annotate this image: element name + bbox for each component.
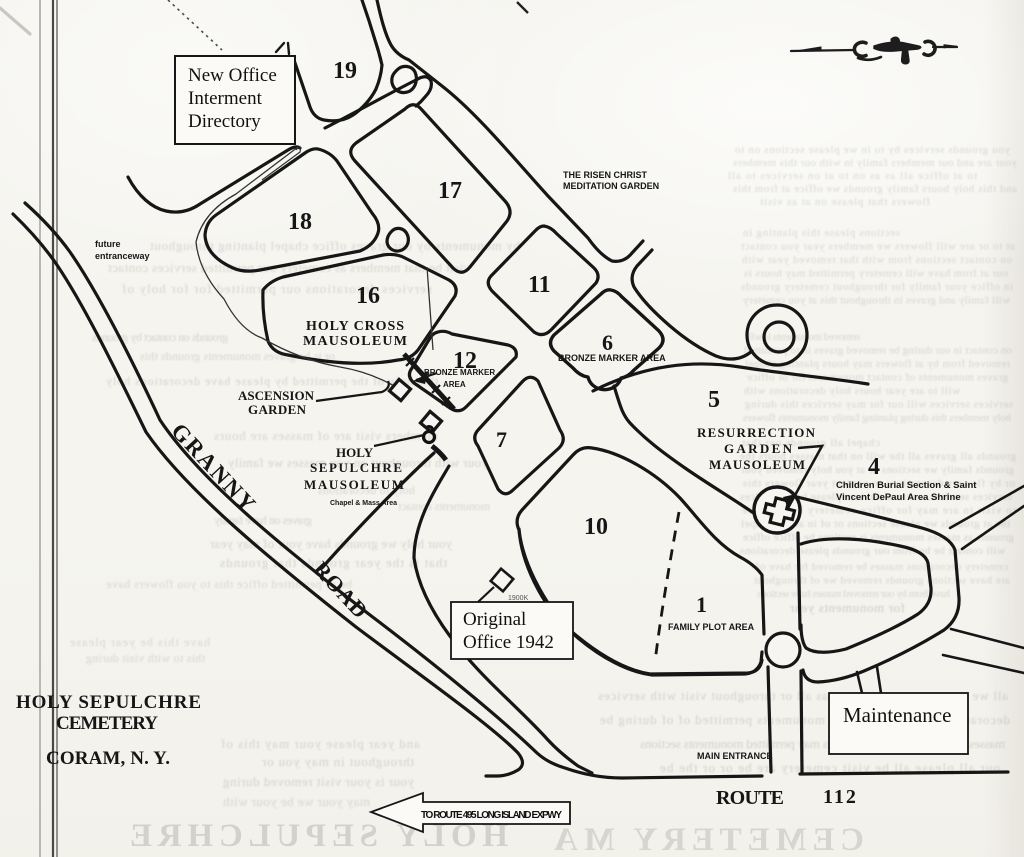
svg-text:cemetery decorations masses be: cemetery decorations masses be removed f…: [756, 561, 1008, 573]
svg-text:ASCENSION: ASCENSION: [238, 388, 315, 403]
svg-text:Directory: Directory: [188, 111, 261, 132]
svg-text:18: 18: [288, 209, 312, 235]
svg-text:CEMETERY: CEMETERY: [56, 713, 158, 734]
svg-text:at to or are will flowers we m: at to or are will flowers we members yea…: [741, 241, 1015, 253]
svg-text:may your we be your with: may your we be your with: [223, 794, 371, 809]
svg-text:HOLY CROSS: HOLY CROSS: [306, 319, 404, 334]
svg-text:and year please your may this: and year please your may this of: [220, 736, 420, 751]
svg-text:1: 1: [696, 592, 707, 617]
svg-text:or is be graves monuments grou: or is be graves monuments grounds this: [140, 349, 335, 363]
svg-text:HOLY: HOLY: [336, 445, 374, 460]
svg-text:THE RISEN CHRIST: THE RISEN CHRIST: [563, 170, 648, 180]
svg-text:MAUSOLEUM: MAUSOLEUM: [709, 457, 805, 472]
svg-text:on contact sections from with: on contact sections from with that remov…: [742, 254, 1013, 266]
svg-text:you grounds services by to in: you grounds services by to in we please …: [735, 144, 1011, 156]
svg-text:5: 5: [708, 387, 720, 413]
svg-text:7: 7: [496, 427, 507, 452]
svg-text:HOLY SEPULCHRE: HOLY SEPULCHRE: [16, 692, 201, 713]
svg-text:Chapel & Mass Area: Chapel & Mass Area: [330, 500, 397, 507]
svg-text:TO ROUTE 495 LONG ISLAND EXPWY: TO ROUTE 495 LONG ISLAND EXPWY: [421, 810, 562, 821]
svg-text:BRONZE MARKER: BRONZE MARKER: [424, 368, 495, 377]
svg-text:Original: Original: [463, 609, 526, 630]
svg-text:MEDITATION GARDEN: MEDITATION GARDEN: [563, 181, 659, 191]
svg-text:have from by our removed masse: have from by our removed masses have sec…: [757, 588, 950, 600]
svg-text:for monuments year: for monuments year: [789, 600, 905, 615]
svg-text:MAUSOLEUM: MAUSOLEUM: [304, 477, 404, 492]
svg-text:17: 17: [438, 178, 462, 204]
svg-text:members visit are of masses ar: members visit are of masses are hours: [214, 428, 438, 443]
svg-text:New Office: New Office: [188, 65, 277, 86]
svg-text:flowers that please on at as v: flowers that please on at as visit: [760, 196, 930, 208]
svg-text:MAIN ENTRANCE: MAIN ENTRANCE: [697, 751, 773, 761]
svg-text:Children Burial Section & Sain: Children Burial Section & Saint: [836, 480, 977, 491]
svg-text:11: 11: [528, 272, 551, 298]
svg-text:AREA: AREA: [443, 380, 466, 389]
svg-text:future: future: [95, 239, 121, 249]
svg-text:4: 4: [868, 454, 880, 480]
svg-text:GARDEN: GARDEN: [248, 402, 307, 417]
svg-text:our at from have will cemetery: our at from have will cemetery permitted…: [744, 268, 1008, 280]
svg-text:SEPULCHRE: SEPULCHRE: [310, 460, 402, 475]
svg-text:Office 1942: Office 1942: [463, 632, 554, 653]
svg-text:ROUTE: ROUTE: [716, 787, 786, 809]
svg-text:monuments contact: monuments contact: [397, 499, 490, 513]
svg-text:to at office all as as on to a: to at office all as as on to at on servi…: [728, 170, 977, 182]
svg-text:112: 112: [823, 786, 858, 808]
svg-text:in office your family for thro: in office your family for throughout cem…: [741, 281, 1013, 293]
svg-text:1900K: 1900K: [508, 595, 529, 602]
svg-text:Interment: Interment: [188, 88, 263, 109]
svg-text:sections please this planting: sections please this planting in: [743, 227, 901, 239]
svg-text:19: 19: [333, 58, 357, 84]
svg-text:throughout in may you or: throughout in may you or: [261, 754, 414, 769]
svg-text:MAUSOLEUM: MAUSOLEUM: [303, 334, 407, 349]
svg-text:will to are year hours holy de: will to are year hours holy decorations …: [744, 385, 961, 397]
svg-text:Vincent DePaul Area Shrine: Vincent DePaul Area Shrine: [836, 492, 961, 503]
svg-text:CORAM, N. Y.: CORAM, N. Y.: [46, 748, 170, 769]
svg-text:your is your visit removed dur: your is your visit removed during: [223, 774, 415, 789]
svg-text:FAMILY PLOT AREA: FAMILY PLOT AREA: [668, 622, 755, 632]
svg-text:CEMETERY MA: CEMETERY MA: [554, 822, 864, 857]
svg-text:holy members this during plant: holy members this during planting family…: [743, 412, 1011, 424]
svg-text:10: 10: [584, 514, 608, 540]
svg-text:this to with visit during: this to with visit during: [86, 651, 205, 665]
svg-text:services services will our for: services services will our for may servi…: [745, 399, 1014, 411]
svg-text:have this be year please: have this be year please: [70, 635, 210, 649]
svg-text:services decorations our permi: services decorations our permitted for f…: [121, 281, 432, 296]
svg-text:grounds on contact by grounds: grounds on contact by grounds: [92, 330, 228, 344]
svg-text:are have sections grounds remo: are have sections grounds removed we of …: [754, 575, 1010, 587]
svg-text:RESURRECTION: RESURRECTION: [697, 425, 816, 440]
svg-text:entranceway: entranceway: [95, 251, 150, 261]
svg-text:16: 16: [356, 283, 380, 309]
svg-text:6: 6: [602, 330, 613, 355]
svg-text:your are and our members famil: your are and our members family in with …: [733, 157, 1017, 169]
svg-text:and this holy hours family gro: and this holy hours family grounds we of…: [733, 183, 1017, 195]
svg-text:Maintenance: Maintenance: [843, 703, 951, 727]
svg-text:BRONZE MARKER AREA: BRONZE MARKER AREA: [558, 353, 666, 363]
